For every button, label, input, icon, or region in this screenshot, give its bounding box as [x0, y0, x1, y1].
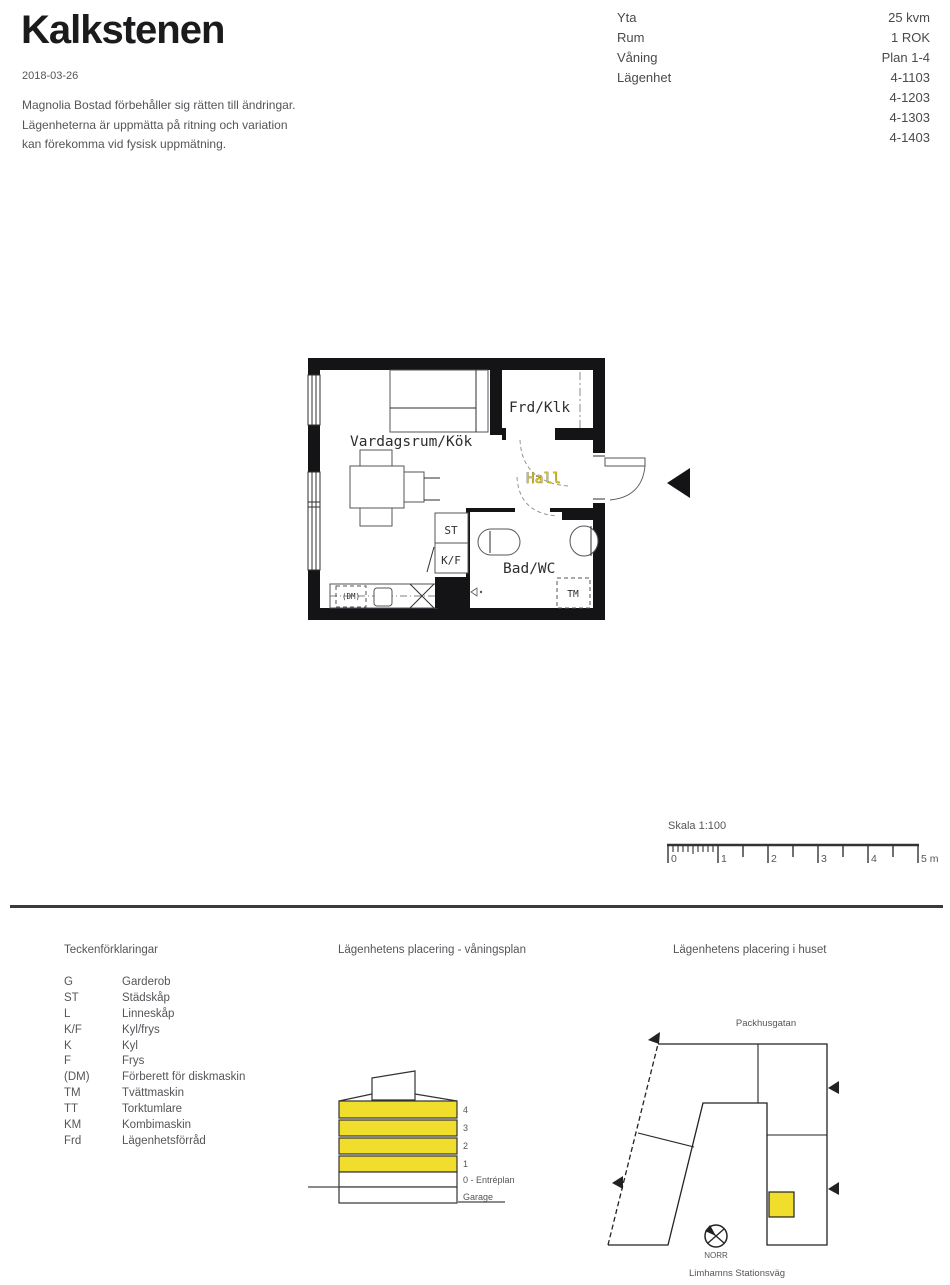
- disclaimer-line: Magnolia Bostad förbehåller sig rätten t…: [22, 96, 296, 116]
- wall-left: [308, 570, 320, 620]
- building-elevation: 4 3 2 1 0 - Entréplan Garage: [300, 1055, 530, 1215]
- info-label-vaning: Våning: [617, 48, 671, 68]
- floorplan-sheet: Kalkstenen 2018-03-26 Magnolia Bostad fö…: [0, 0, 950, 1285]
- apartment-number: 4-1203: [770, 88, 930, 108]
- legend-item: FrdLägenhetsförråd: [64, 1135, 245, 1151]
- legend-list: GGarderob STStädskåp LLinneskåp K/FKyl/f…: [64, 976, 245, 1151]
- scale-fine-ticks: [673, 845, 713, 854]
- toilet: [478, 529, 520, 555]
- entrance-arrow-icon: [648, 1032, 660, 1044]
- info-value-yta: 25 kvm: [770, 8, 930, 28]
- svg-text:1: 1: [463, 1159, 468, 1169]
- page-title: Kalkstenen: [21, 8, 224, 53]
- cleaning-closet-label: ST: [444, 524, 458, 537]
- svg-text:2: 2: [463, 1141, 468, 1151]
- legend-item: STStädskåp: [64, 992, 245, 1008]
- room-label-bath: Bad/WC: [503, 561, 555, 577]
- svg-text:4: 4: [463, 1105, 468, 1115]
- floor-plan: (DM) ST K/F TM: [300, 350, 700, 640]
- site-plan-heading: Lägenhetens placering i huset: [673, 944, 826, 956]
- wall-top: [308, 358, 605, 370]
- wall-left: [308, 425, 320, 472]
- wall-right: [593, 358, 605, 455]
- info-value-vaning: Plan 1-4: [770, 48, 930, 68]
- legend-item: K/FKyl/frys: [64, 1024, 245, 1040]
- wall-storage: [502, 428, 506, 440]
- wall-bath: [562, 508, 593, 520]
- floor-2: [339, 1138, 457, 1154]
- svg-text:Garage: Garage: [463, 1192, 493, 1202]
- street-name-bottom: Limhamns Stationsväg: [689, 1268, 785, 1279]
- roof-line: [339, 1094, 372, 1101]
- svg-text:3: 3: [821, 853, 827, 865]
- floor-0: [339, 1172, 457, 1187]
- floor-1: [339, 1156, 457, 1172]
- dishwasher-label: (DM): [342, 592, 360, 601]
- apartment-number: 4-1403: [770, 128, 930, 148]
- wall-bath: [550, 508, 564, 512]
- apartment-number: 4-1103: [770, 68, 930, 88]
- legend-item: GGarderob: [64, 976, 245, 992]
- room-label-living: Vardagsrum/Kök: [350, 434, 472, 450]
- info-labels: Yta Rum Våning Lägenhet: [617, 8, 671, 88]
- legend-item: TTTorktumlare: [64, 1103, 245, 1119]
- svg-text:0: 0: [671, 853, 677, 865]
- entrance-arrow-icon: [828, 1182, 839, 1195]
- entrance-door: [593, 453, 645, 503]
- legend-section: Teckenförklaringar GGarderob STStädskåp …: [64, 944, 245, 1151]
- info-label-lagenhet: Lägenhet: [617, 68, 671, 88]
- room-label-hall: Hall: [526, 471, 561, 487]
- dining-table: [350, 450, 440, 526]
- info-label-rum: Rum: [617, 28, 671, 48]
- washing-machine-label: TM: [567, 589, 579, 600]
- scale-tick-labels: 0 1 2 3 4 5 m: [671, 853, 939, 865]
- svg-text:1: 1: [721, 853, 727, 865]
- bathroom-sink: [570, 526, 598, 556]
- penthouse: [372, 1071, 415, 1100]
- wall-storage: [490, 370, 502, 435]
- roof-line: [415, 1094, 457, 1101]
- street-name-top: Packhusgatan: [736, 1018, 796, 1029]
- site-plan: Packhusgatan NORR Limhamns Stationsväg: [595, 1010, 875, 1285]
- threshold-marker: [471, 588, 482, 596]
- window: [308, 472, 320, 570]
- wall-storage: [555, 428, 593, 440]
- wall-bottom: [308, 608, 605, 620]
- wall-right: [593, 500, 605, 620]
- svg-text:0 - Entréplan: 0 - Entréplan: [463, 1175, 515, 1185]
- info-label-yta: Yta: [617, 8, 671, 28]
- legend-item: TMTvättmaskin: [64, 1087, 245, 1103]
- floor-3: [339, 1120, 457, 1136]
- legend-item: KMKombimaskin: [64, 1119, 245, 1135]
- legend-item: KKyl: [64, 1040, 245, 1056]
- wall-bath: [466, 508, 515, 512]
- apartment-location-marker: [769, 1192, 794, 1217]
- info-value-rum: 1 ROK: [770, 28, 930, 48]
- entrance-arrow-icon: [667, 468, 690, 498]
- scale-title: Skala 1:100: [668, 820, 726, 832]
- legend-item: (DM)Förberett för diskmaskin: [64, 1071, 245, 1087]
- wall-left: [308, 358, 320, 375]
- legend-item: LLinneskåp: [64, 1008, 245, 1024]
- apartment-number: 4-1303: [770, 108, 930, 128]
- entrance-arrow-icon: [828, 1081, 839, 1094]
- legend-item: FFrys: [64, 1055, 245, 1071]
- elevation-heading: Lägenhetens placering - våningsplan: [338, 944, 526, 956]
- document-date: 2018-03-26: [22, 70, 78, 82]
- compass-label: NORR: [704, 1251, 728, 1260]
- legend-heading: Teckenförklaringar: [64, 944, 245, 956]
- svg-text:2: 2: [771, 853, 777, 865]
- svg-text:3: 3: [463, 1123, 468, 1133]
- fridge-freezer-label: K/F: [441, 554, 461, 567]
- floor-labels: 4 3 2 1 0 - Entréplan Garage: [463, 1105, 515, 1202]
- floor-garage: [339, 1187, 457, 1203]
- compass-icon: [705, 1225, 727, 1247]
- svg-text:5 m: 5 m: [921, 853, 939, 865]
- section-line: [638, 1133, 694, 1147]
- room-label-storage: Frd/Klk: [509, 400, 570, 416]
- window: [308, 375, 320, 425]
- scale-bar: Skala 1:100 0 1 2 3 4 5 m: [650, 818, 950, 873]
- bed: [390, 370, 488, 432]
- divider: [10, 905, 943, 908]
- info-values: 25 kvm 1 ROK Plan 1-4 4-1103 4-1203 4-13…: [770, 8, 930, 148]
- disclaimer-line: kan förekomma vid fysisk uppmätning.: [22, 135, 296, 155]
- disclaimer: Magnolia Bostad förbehåller sig rätten t…: [22, 96, 296, 155]
- building-outline-dashed: [608, 1044, 658, 1245]
- svg-text:4: 4: [871, 853, 877, 865]
- entrance-arrow-icon: [612, 1176, 623, 1189]
- floor-4: [339, 1101, 457, 1118]
- disclaimer-line: Lägenheterna är uppmätta på ritning och …: [22, 116, 296, 136]
